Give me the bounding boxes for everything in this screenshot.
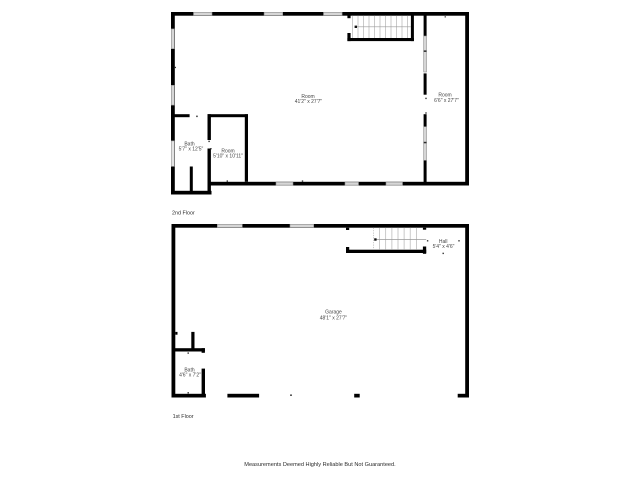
svg-text:6'6" x 27'7": 6'6" x 27'7" (434, 98, 459, 104)
svg-text:41'2" x 27'7": 41'2" x 27'7" (295, 99, 323, 105)
svg-text:5'10" x 10'11": 5'10" x 10'11" (213, 153, 243, 159)
svg-text:48'1" x 27'7": 48'1" x 27'7" (320, 316, 348, 322)
svg-text:Measurements Deemed Highly Rel: Measurements Deemed Highly Reliable But … (244, 462, 396, 468)
svg-text:5'7" x 12'5": 5'7" x 12'5" (179, 147, 204, 153)
svg-text:4'6" x 7'2": 4'6" x 7'2" (179, 372, 201, 378)
svg-text:1st Floor: 1st Floor (173, 414, 194, 420)
svg-text:2nd Floor: 2nd Floor (172, 210, 195, 216)
svg-text:5'4" x 4'6": 5'4" x 4'6" (433, 244, 455, 250)
